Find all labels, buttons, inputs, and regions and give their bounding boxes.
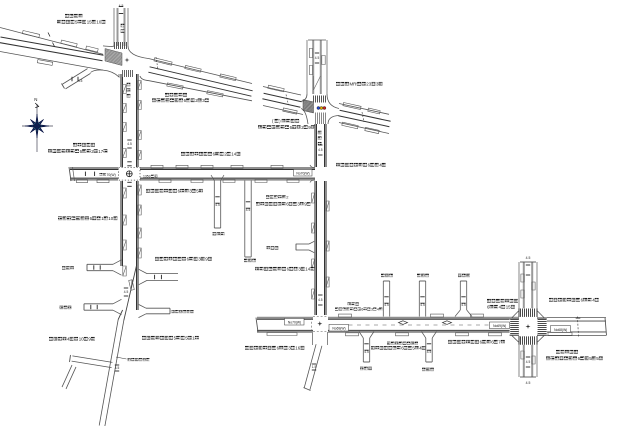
- svg-text:23: 23: [366, 82, 371, 87]
- svg-text:4.5: 4.5: [461, 303, 466, 307]
- svg-text:14: 14: [231, 152, 236, 157]
- svg-text:4.5: 4.5: [526, 360, 531, 364]
- svg-text:N: N: [34, 97, 37, 102]
- svg-text:17: 17: [98, 149, 103, 154]
- svg-text:4.5: 4.5: [119, 4, 124, 8]
- svg-text:4.5: 4.5: [384, 303, 389, 307]
- svg-text:10: 10: [79, 337, 84, 342]
- svg-text:No69(W): No69(W): [493, 324, 506, 328]
- svg-text:4.5: 4.5: [315, 56, 320, 60]
- svg-text:4: 4: [377, 308, 379, 312]
- svg-text:4.5: 4.5: [526, 381, 531, 385]
- svg-text:4.5: 4.5: [215, 203, 220, 207]
- svg-text:15: 15: [506, 305, 511, 310]
- svg-text:4.5: 4.5: [124, 290, 129, 294]
- svg-text:No68(W): No68(W): [554, 328, 567, 332]
- svg-text:No70(W): No70(W): [296, 172, 309, 176]
- svg-text:No70(W): No70(W): [288, 321, 301, 325]
- svg-text:10: 10: [96, 20, 101, 25]
- svg-text:1.5: 1.5: [312, 365, 317, 369]
- svg-text:1353: 1353: [143, 175, 151, 179]
- svg-text:4.5: 4.5: [526, 256, 531, 260]
- svg-text:6: 6: [361, 308, 363, 312]
- svg-text:No69(W): No69(W): [332, 327, 345, 331]
- svg-text:14: 14: [305, 267, 310, 272]
- svg-text:15: 15: [87, 20, 92, 25]
- svg-text:4.5: 4.5: [318, 148, 323, 152]
- svg-text:4.5: 4.5: [127, 142, 132, 146]
- svg-text:4.5: 4.5: [364, 350, 369, 354]
- svg-text:4.5: 4.5: [115, 366, 120, 370]
- svg-text:4.5: 4.5: [420, 303, 425, 307]
- svg-text:70(W): 70(W): [107, 173, 116, 177]
- svg-text:3: 3: [371, 308, 373, 312]
- svg-text:4.5: 4.5: [318, 298, 323, 302]
- svg-text:4.5: 4.5: [427, 350, 432, 354]
- svg-text:4.5: 4.5: [78, 79, 83, 83]
- svg-text:10: 10: [108, 216, 113, 221]
- svg-text:4.5: 4.5: [246, 208, 251, 212]
- svg-text:16: 16: [295, 346, 300, 351]
